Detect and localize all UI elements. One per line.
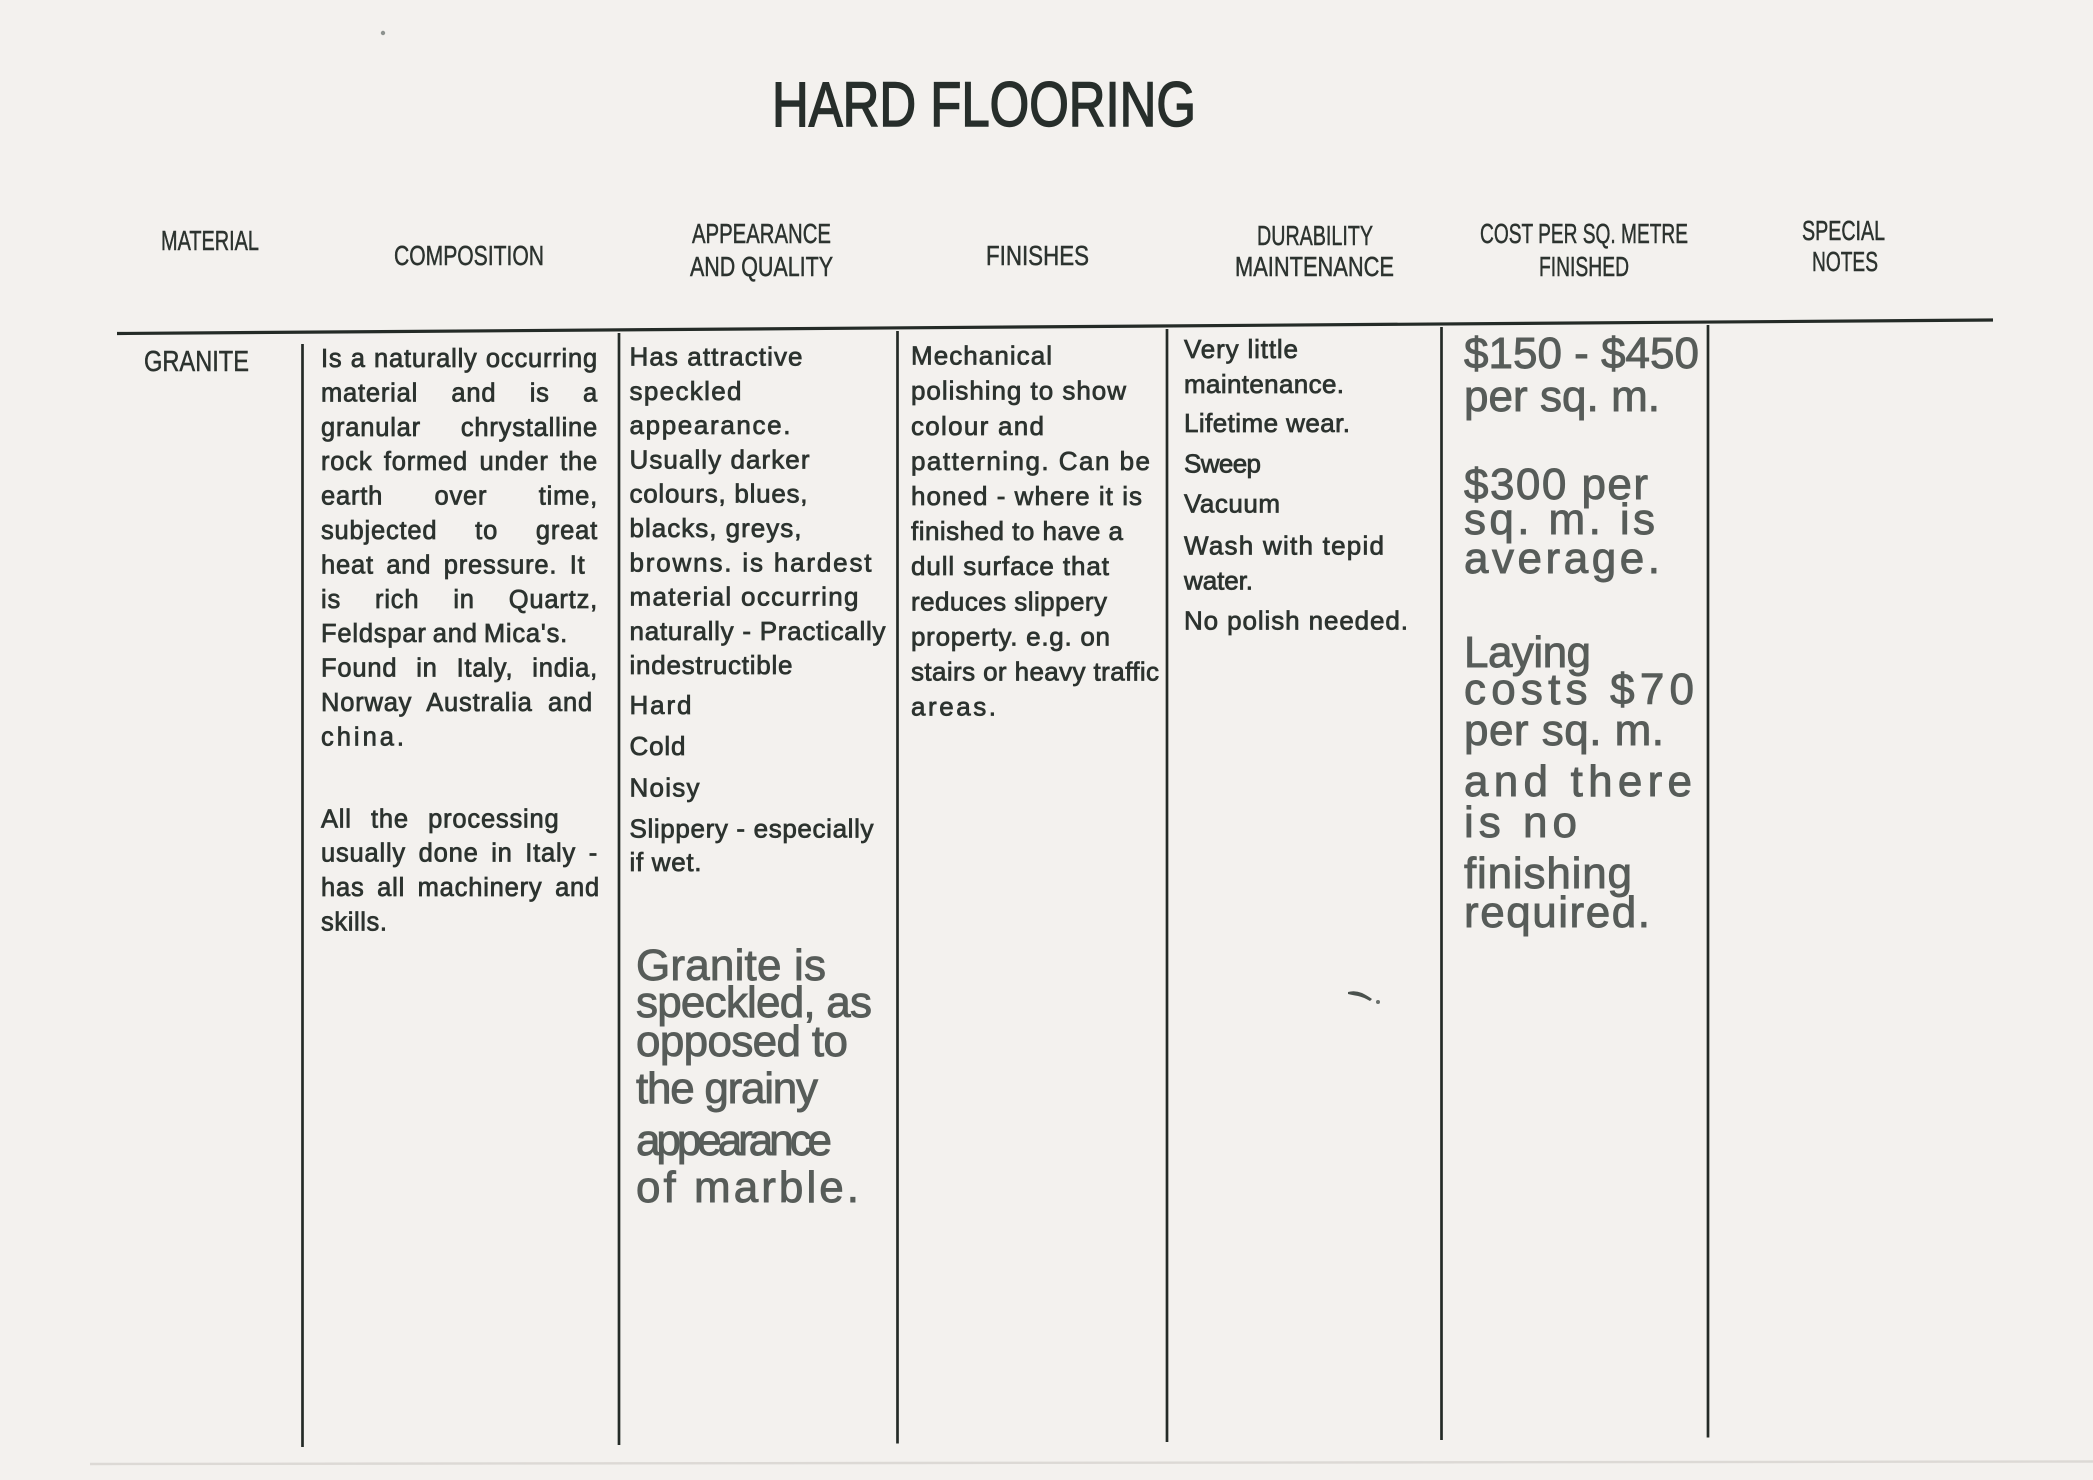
- svg-text:Sweep: Sweep: [1184, 448, 1261, 478]
- svg-text:skills.: skills.: [321, 909, 387, 937]
- svg-text:No polish needed.: No polish needed.: [1184, 606, 1408, 636]
- svg-text:colour and: colour and: [911, 411, 1044, 441]
- svg-text:FINISHED: FINISHED: [1539, 251, 1629, 282]
- svg-text:per sq. m.: per sq. m.: [1464, 706, 1664, 755]
- svg-text:MAINTENANCE: MAINTENANCE: [1235, 251, 1394, 282]
- svg-text:COMPOSITION: COMPOSITION: [394, 240, 544, 271]
- svg-text:granular chrystalline: granular chrystalline: [321, 414, 598, 442]
- svg-text:material and is a: material and is a: [321, 379, 598, 407]
- svg-text:reduces slippery: reduces slippery: [911, 586, 1107, 616]
- svg-text:naturally - Practically: naturally - Practically: [630, 616, 886, 646]
- svg-text:Hard: Hard: [630, 690, 692, 720]
- svg-text:rock formed under the: rock formed under the: [321, 448, 598, 476]
- svg-text:has all machinery and: has all machinery and: [321, 874, 600, 902]
- svg-text:Found in Italy, india,: Found in Italy, india,: [321, 655, 598, 683]
- svg-text:appearance: appearance: [636, 1116, 832, 1165]
- svg-text:honed - where it is: honed - where it is: [911, 481, 1142, 511]
- svg-text:Slippery - especially: Slippery - especially: [630, 814, 874, 844]
- svg-text:NOTES: NOTES: [1812, 246, 1878, 277]
- svg-text:speckled: speckled: [630, 376, 742, 406]
- svg-text:water.: water.: [1183, 565, 1253, 595]
- svg-text:the grainy: the grainy: [636, 1064, 818, 1113]
- svg-text:Wash with tepid: Wash with tepid: [1184, 530, 1384, 560]
- svg-text:Noisy: Noisy: [630, 772, 700, 802]
- svg-text:Feldspar and Mica's.: Feldspar and Mica's.: [321, 620, 568, 648]
- svg-text:browns. is hardest: browns. is hardest: [630, 547, 873, 577]
- svg-text:FINISHES: FINISHES: [986, 240, 1089, 271]
- svg-text:colours, blues,: colours, blues,: [630, 479, 808, 509]
- svg-text:heat and pressure. It: heat and pressure. It: [321, 551, 586, 579]
- svg-text:polishing to show: polishing to show: [911, 376, 1126, 406]
- svg-text:Usually darker: Usually darker: [630, 444, 810, 474]
- svg-text:maintenance.: maintenance.: [1184, 369, 1344, 399]
- svg-text:subjected to great: subjected to great: [321, 517, 598, 545]
- svg-text:per sq. m.: per sq. m.: [1464, 372, 1660, 421]
- svg-text:COST PER SQ. METRE: COST PER SQ. METRE: [1480, 218, 1688, 249]
- svg-text:Vacuum: Vacuum: [1184, 489, 1280, 519]
- svg-text:Very little: Very little: [1184, 334, 1298, 364]
- svg-text:HARD FLOORING: HARD FLOORING: [772, 70, 1196, 140]
- svg-text:earth over time,: earth over time,: [321, 483, 598, 511]
- svg-text:material occurring: material occurring: [630, 582, 859, 612]
- svg-text:SPECIAL: SPECIAL: [1802, 215, 1885, 246]
- svg-text:indestructible: indestructible: [630, 650, 793, 680]
- svg-text:Mechanical: Mechanical: [911, 341, 1052, 371]
- svg-text:is rich in Quartz,: is rich in Quartz,: [321, 586, 598, 614]
- svg-text:finished to have a: finished to have a: [911, 516, 1124, 546]
- svg-text:AND QUALITY: AND QUALITY: [690, 251, 833, 282]
- svg-text:All the processing: All the processing: [321, 805, 559, 833]
- svg-text:Norway Australia and: Norway Australia and: [321, 689, 593, 717]
- svg-text:opposed to: opposed to: [636, 1017, 848, 1066]
- svg-text:stairs or heavy traffic: stairs or heavy traffic: [911, 657, 1159, 687]
- svg-text:GRANITE: GRANITE: [144, 346, 249, 378]
- svg-text:areas.: areas.: [911, 692, 996, 722]
- svg-text:usually done in Italy -: usually done in Italy -: [321, 840, 598, 868]
- svg-text:MATERIAL: MATERIAL: [161, 225, 259, 256]
- svg-text:Has attractive: Has attractive: [630, 342, 803, 372]
- svg-text:appearance.: appearance.: [630, 410, 791, 440]
- svg-text:Is a naturally occurring: Is a naturally occurring: [321, 345, 598, 373]
- svg-text:dull surface that: dull surface that: [911, 551, 1110, 581]
- svg-text:is no: is no: [1464, 798, 1577, 847]
- svg-text:of marble.: of marble.: [636, 1163, 859, 1212]
- svg-text:$150 - $450: $150 - $450: [1464, 329, 1699, 378]
- svg-text:china.: china.: [321, 723, 404, 751]
- svg-text:DURABILITY: DURABILITY: [1257, 220, 1373, 251]
- svg-text:patterning. Can be: patterning. Can be: [911, 446, 1150, 476]
- svg-text:Lifetime wear.: Lifetime wear.: [1184, 408, 1350, 438]
- svg-text:APPEARANCE: APPEARANCE: [692, 218, 831, 249]
- svg-text:blacks, greys,: blacks, greys,: [630, 513, 802, 543]
- svg-text:Cold: Cold: [630, 731, 686, 761]
- svg-text:if wet.: if wet.: [630, 847, 702, 877]
- svg-text:property. e.g. on: property. e.g. on: [911, 621, 1110, 651]
